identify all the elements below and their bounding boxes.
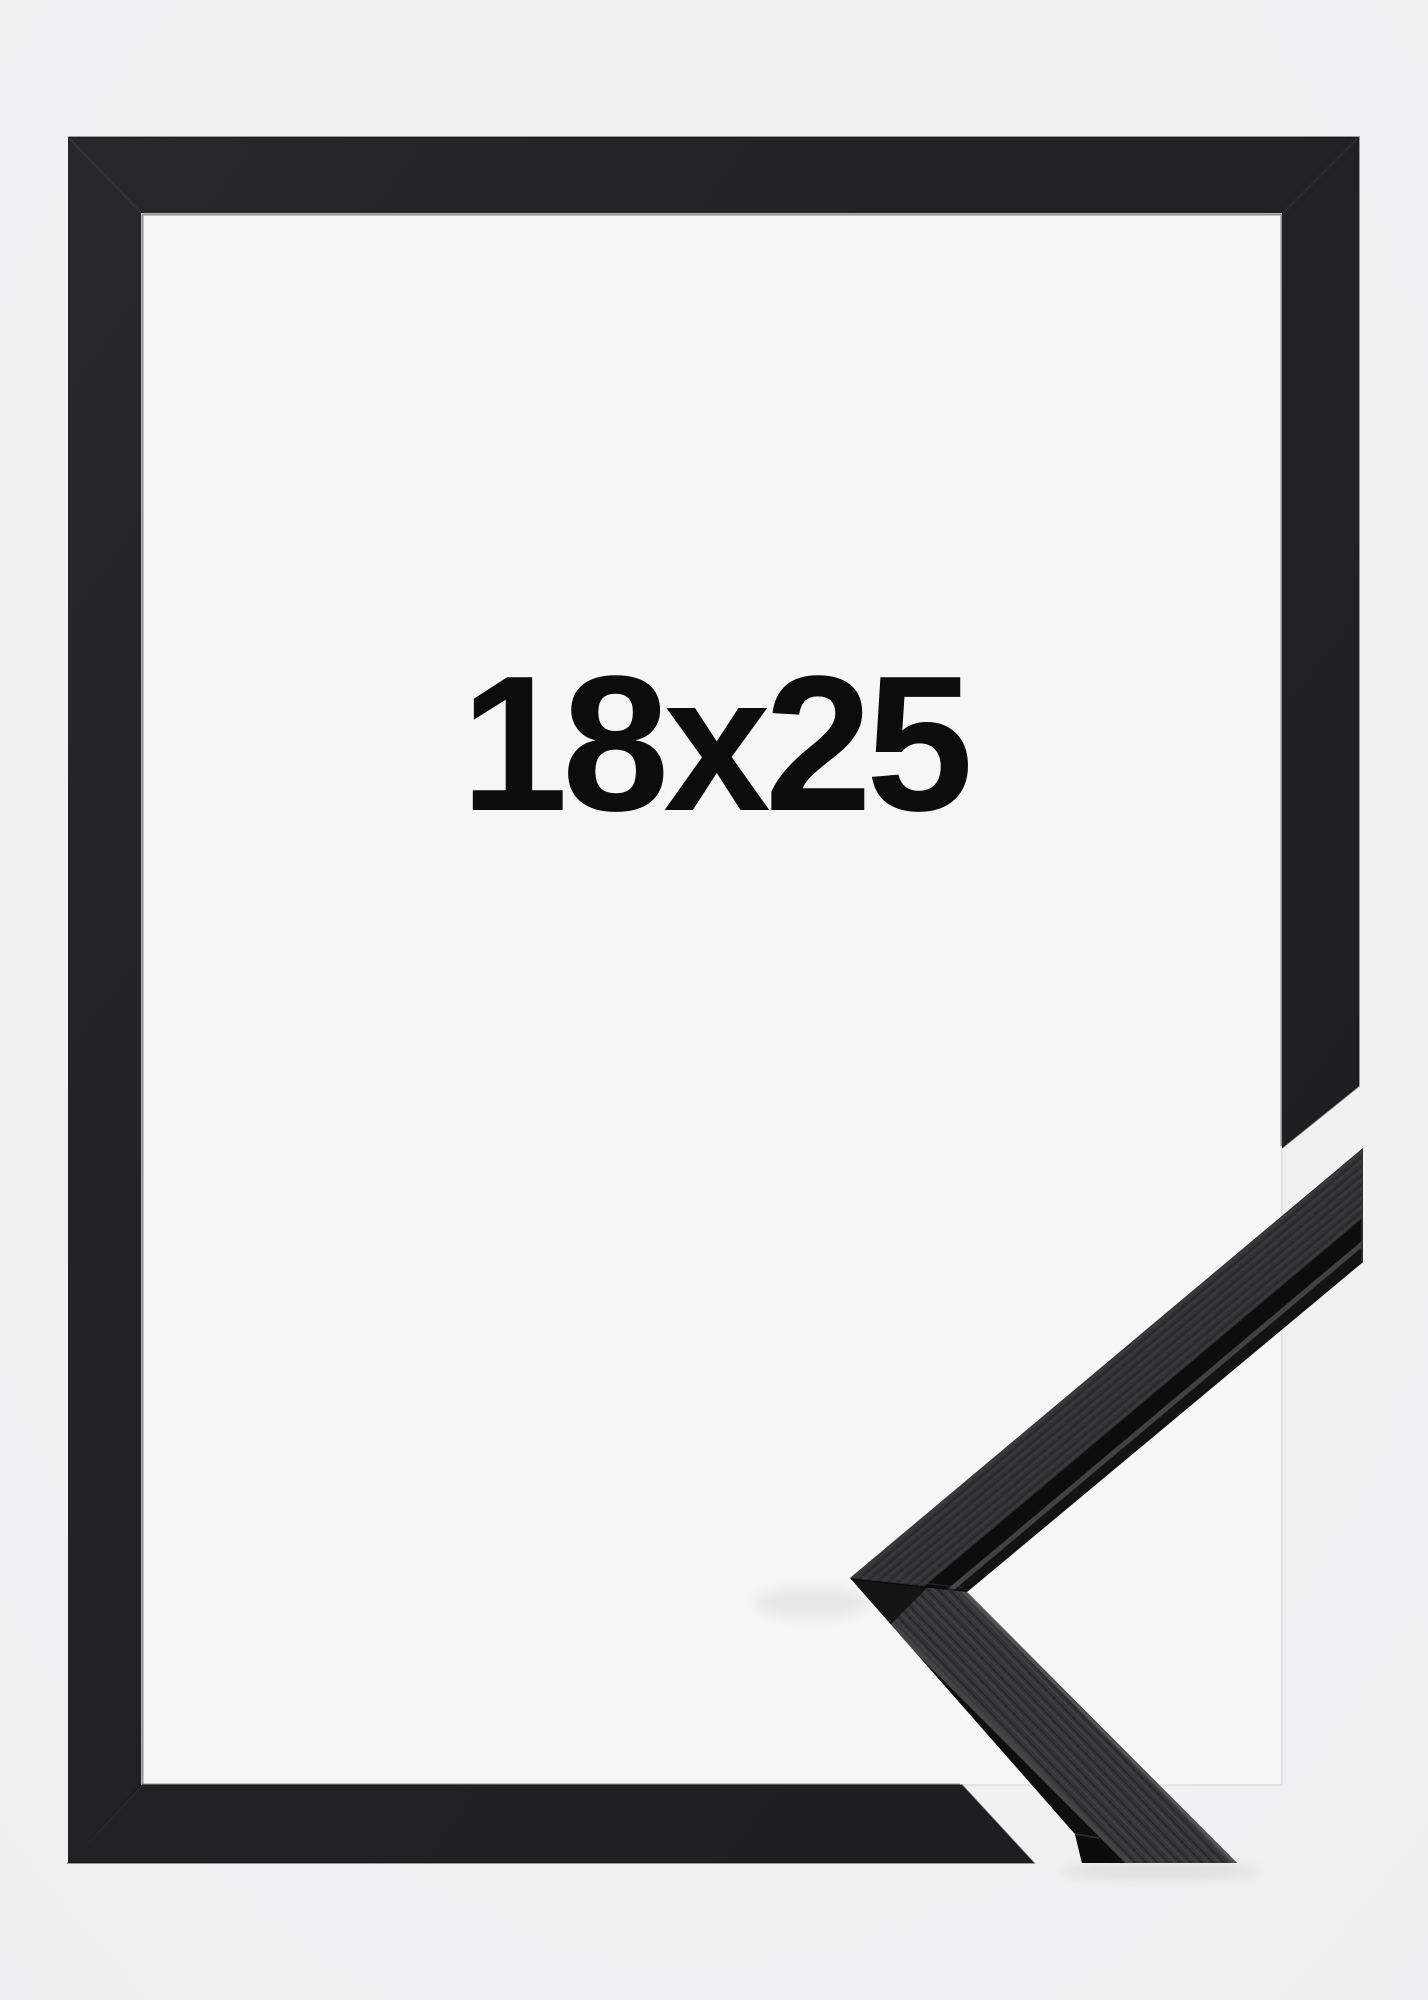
frame-opening	[141, 213, 1282, 1785]
sample-shadow-left	[754, 1587, 870, 1619]
product-photo: 18x25	[0, 0, 1428, 2000]
frame-size-label: 18x25	[461, 635, 968, 851]
product-photo-canvas: 18x25	[0, 0, 1428, 2000]
sample-shadow-bottom	[1060, 1862, 1260, 1880]
